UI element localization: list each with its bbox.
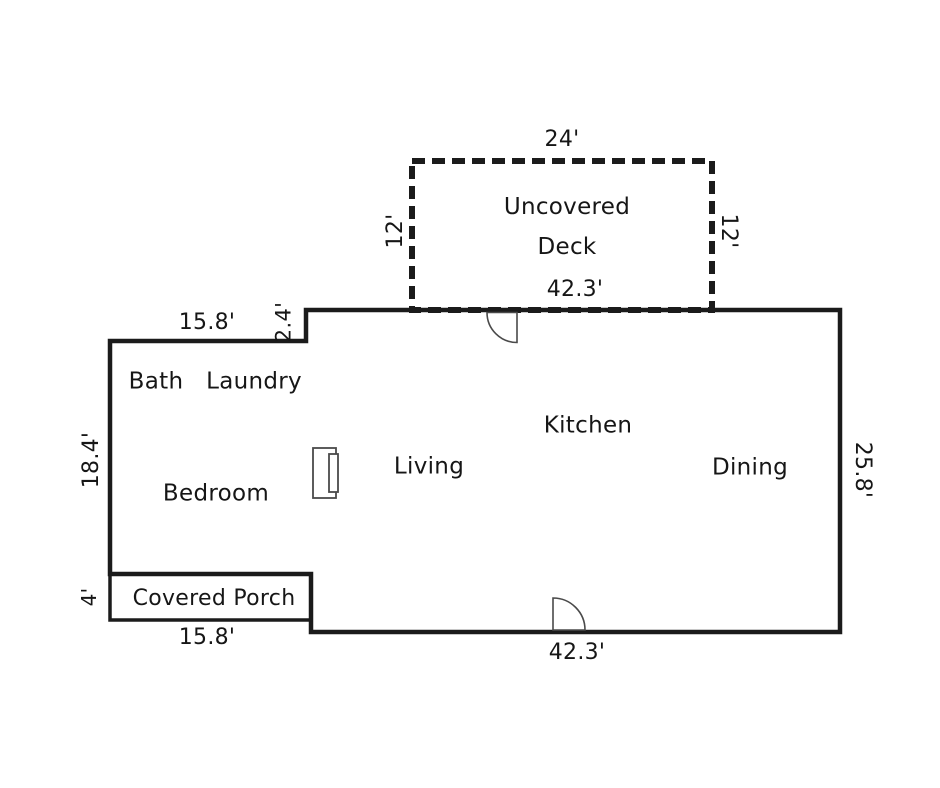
bottom-width-dimension: 42.3' [549,641,606,665]
deck-left-dimension: 12' [384,214,408,249]
room-label-kitchen: Kitchen [544,413,633,438]
right-height-dimension: 25.8' [850,442,874,499]
room-label-dining: Dining [712,455,788,480]
bottom-door-swing-icon [553,598,585,630]
left-height-dimension: 18.4' [80,432,104,489]
room-label-laundry: Laundry [206,369,302,394]
room-label-bath: Bath [129,369,184,394]
top-door-swing-icon [487,313,517,343]
room-label-bedroom: Bedroom [163,481,269,506]
deck-top-dimension: 24' [545,128,580,152]
floor-plan: 24' 12' 12' Uncovered Deck 42.3' 15.8' 2… [0,0,940,788]
deck-right-dimension: 12' [716,214,740,249]
fireplace-inner-icon [329,454,338,492]
deck-bottom-dimension: 42.3' [547,278,604,302]
room-label-covered-porch: Covered Porch [133,587,296,611]
upper-left-width-dimension: 15.8' [179,311,236,335]
room-label-living: Living [394,454,464,479]
step-dimension: 2.4' [272,302,295,342]
deck-label: Uncovered Deck [485,187,650,267]
porch-width-dimension: 15.8' [179,626,236,650]
porch-height-dimension: 4' [78,588,100,607]
